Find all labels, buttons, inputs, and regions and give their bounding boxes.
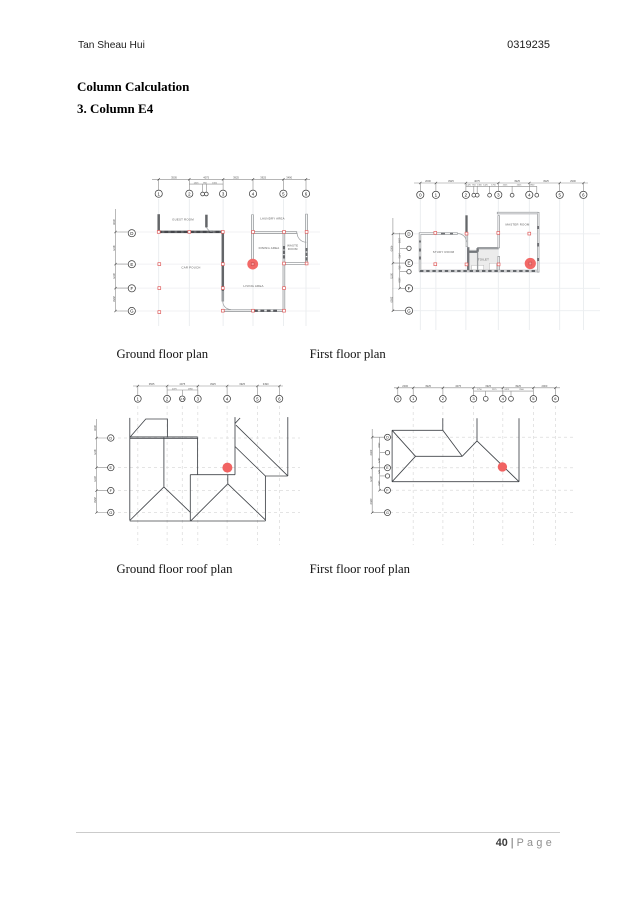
svg-text:1475: 1475: [397, 253, 399, 259]
svg-text:3925: 3925: [514, 179, 520, 183]
svg-text:4075: 4075: [179, 382, 185, 386]
svg-text:E: E: [408, 261, 411, 266]
svg-text:LIVING AREA: LIVING AREA: [243, 284, 263, 288]
svg-text:3925: 3925: [260, 175, 266, 179]
svg-text:875: 875: [377, 470, 379, 475]
svg-text:F: F: [408, 286, 411, 291]
svg-text:3925: 3925: [233, 175, 239, 179]
svg-text:E: E: [130, 262, 133, 267]
svg-text:E: E: [110, 466, 113, 470]
svg-text:2075: 2075: [172, 388, 178, 390]
svg-text:3505: 3505: [171, 175, 177, 179]
svg-text:1650: 1650: [377, 480, 379, 486]
svg-text:1500: 1500: [377, 442, 379, 448]
svg-text:4075: 4075: [203, 175, 209, 179]
svg-text:3925: 3925: [239, 382, 245, 386]
svg-text:D: D: [130, 231, 133, 236]
svg-text:D: D: [407, 231, 410, 236]
svg-text:3925: 3925: [210, 382, 216, 386]
svg-text:D: D: [386, 436, 389, 440]
svg-text:3925: 3925: [448, 179, 454, 183]
svg-text:G: G: [407, 308, 411, 313]
svg-text:3490: 3490: [263, 382, 269, 386]
svg-text:1425: 1425: [194, 182, 200, 184]
svg-text:2900: 2900: [570, 179, 576, 183]
svg-text:3925: 3925: [425, 384, 431, 388]
svg-text:2900: 2900: [542, 384, 548, 388]
svg-text:F: F: [130, 286, 133, 291]
svg-text:STUDY ROOM: STUDY ROOM: [433, 250, 455, 254]
svg-text:2.5: 2.5: [180, 397, 185, 401]
svg-text:DINING AREA: DINING AREA: [259, 246, 280, 250]
svg-text:3925: 3925: [485, 384, 491, 388]
svg-text:4075: 4075: [474, 179, 480, 183]
svg-text:1300: 1300: [212, 182, 218, 184]
svg-text:3925: 3925: [515, 384, 521, 388]
svg-text:3925: 3925: [543, 179, 549, 183]
svg-text:1475: 1475: [377, 458, 379, 464]
svg-text:1650: 1650: [397, 277, 399, 283]
svg-text:CAR POUCH: CAR POUCH: [181, 266, 200, 270]
svg-text:TOILET: TOILET: [478, 258, 489, 262]
svg-text:1500: 1500: [397, 238, 399, 244]
svg-text:1950: 1950: [188, 388, 194, 390]
svg-text:2000: 2000: [402, 384, 408, 388]
svg-text:G: G: [386, 511, 389, 515]
svg-text:2000: 2000: [425, 179, 431, 183]
svg-text:3490: 3490: [286, 175, 292, 179]
svg-text:MASTER ROOM: MASTER ROOM: [505, 223, 529, 227]
svg-text:875: 875: [397, 266, 399, 271]
svg-text:LAUNDRY AREA: LAUNDRY AREA: [260, 217, 285, 221]
svg-text:3505: 3505: [149, 382, 155, 386]
svg-text:G: G: [109, 511, 112, 515]
svg-text:G: G: [130, 309, 134, 314]
svg-text:GUEST ROOM: GUEST ROOM: [172, 218, 194, 222]
svg-text:ROOM: ROOM: [288, 247, 298, 251]
svg-text:4075: 4075: [455, 384, 461, 388]
svg-text:D: D: [109, 437, 112, 441]
